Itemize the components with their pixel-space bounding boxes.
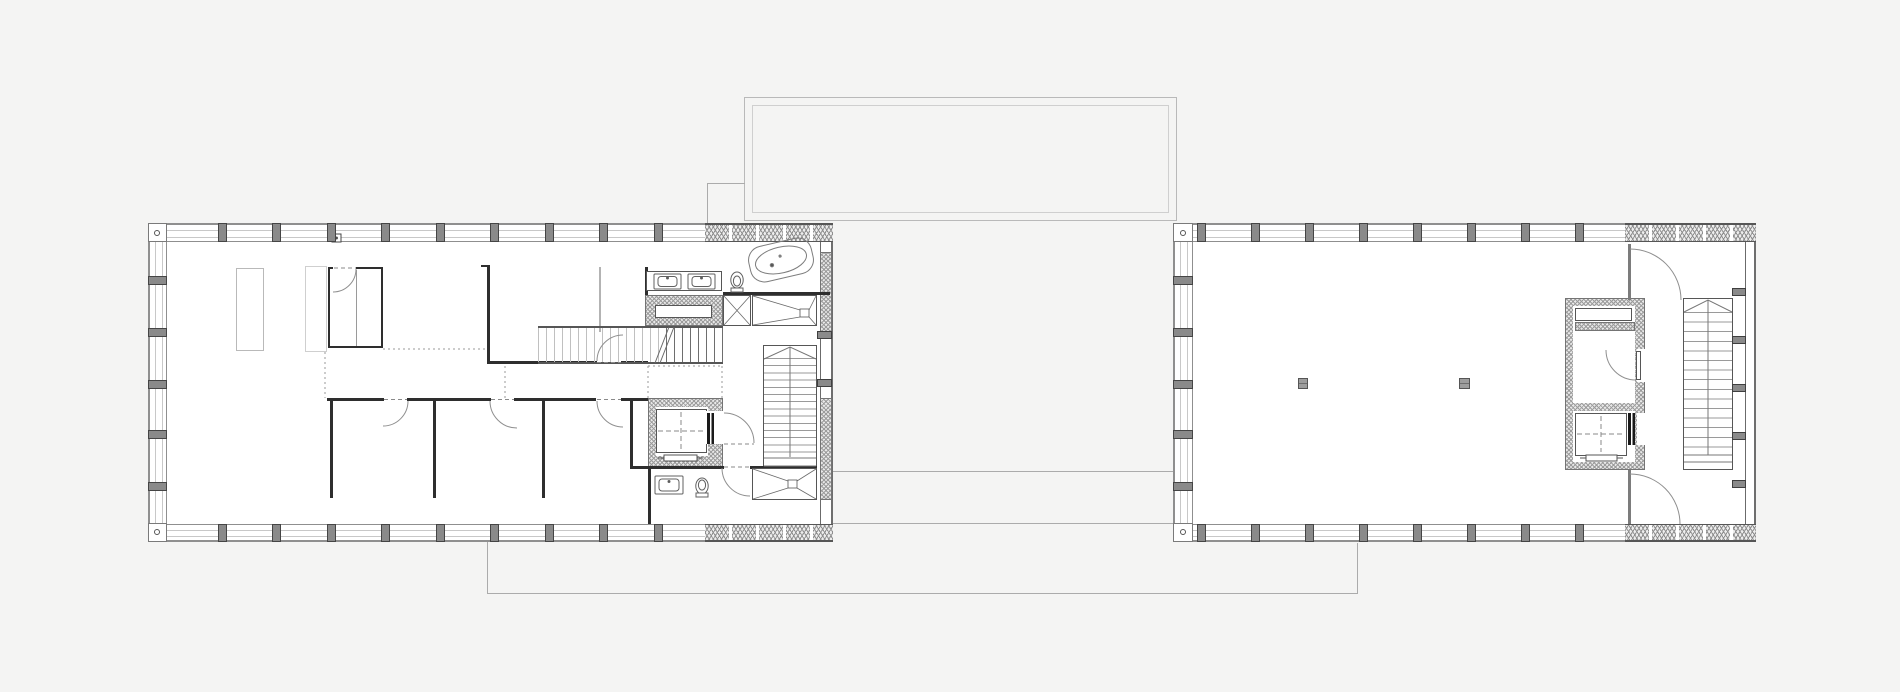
core-storage-door-leaf xyxy=(1636,351,1641,380)
lb-bottom-mullion xyxy=(327,524,336,542)
lb-right-pier xyxy=(817,331,832,339)
door-jamb-north xyxy=(1628,244,1631,300)
rb-bottom-mullion xyxy=(1413,524,1422,542)
main-stair-treads xyxy=(764,358,816,458)
roof-outline-inner xyxy=(752,105,1169,213)
rb-left-mullion xyxy=(1173,430,1193,439)
right-building-facade-south xyxy=(1173,524,1625,542)
lb-top-mullion xyxy=(490,223,499,242)
deck-outline-bottom xyxy=(487,593,1358,594)
rb-right-pier xyxy=(1732,288,1746,296)
lb-top-mullion xyxy=(654,223,663,242)
stair-guard-line xyxy=(599,267,601,332)
left-building-facade-south xyxy=(148,524,705,542)
lb-left-mullion xyxy=(148,276,167,285)
east-stair-treads xyxy=(1684,312,1732,455)
rb-right-pier xyxy=(1732,480,1746,488)
lb-left-mullion xyxy=(148,430,167,439)
rb-top-mullion xyxy=(1359,223,1368,242)
wall-l-vertical xyxy=(487,267,490,363)
right-building-hatched-wall-north xyxy=(1625,223,1756,242)
shower-north-tray xyxy=(752,295,817,326)
braced-shaft-box xyxy=(723,295,751,326)
bathroom-south-wall-north-a xyxy=(650,466,724,469)
bridge-line-upper xyxy=(833,471,1175,472)
partition-room2 xyxy=(433,401,436,498)
rb-bottom-mullion xyxy=(1467,524,1476,542)
rb-left-mullion xyxy=(1173,328,1193,337)
elevator-car xyxy=(656,409,707,453)
stair-mid-edge-south xyxy=(538,362,723,364)
rb-top-mullion xyxy=(1467,223,1476,242)
wall-l-cap xyxy=(481,265,490,267)
partition-room4 xyxy=(630,401,633,468)
lb-left-mullion xyxy=(148,328,167,337)
right-building-corner-post-nw xyxy=(1173,223,1193,242)
wall-rooms-b xyxy=(407,398,491,401)
partition-room3 xyxy=(542,401,545,498)
wall-rooms-d xyxy=(621,398,648,401)
lb-bottom-mullion xyxy=(436,524,445,542)
wardrobe-door-opening xyxy=(333,267,356,269)
bridge-line-lower xyxy=(833,523,1175,524)
lb-bottom-mullion xyxy=(654,524,663,542)
left-building-hatched-wall-north xyxy=(705,223,833,242)
core-elevator-door-opening xyxy=(1637,413,1645,445)
lb-bottom-mullion xyxy=(272,524,281,542)
rb-bottom-mullion xyxy=(1251,524,1260,542)
rb-bottom-mullion xyxy=(1575,524,1584,542)
partition-room1 xyxy=(330,401,333,498)
rb-bottom-mullion xyxy=(1521,524,1530,542)
lb-left-mullion xyxy=(148,380,167,389)
shower-south-tray xyxy=(752,468,817,500)
rb-right-pier xyxy=(1732,336,1746,344)
lb-top-mullion xyxy=(327,223,336,242)
rb-left-mullion xyxy=(1173,276,1193,285)
wall-rooms-a xyxy=(327,398,384,401)
rb-top-mullion xyxy=(1575,223,1584,242)
lb-bottom-mullion xyxy=(545,524,554,542)
lb-bottom-mullion xyxy=(218,524,227,542)
rb-top-mullion xyxy=(1521,223,1530,242)
rb-top-mullion xyxy=(1413,223,1422,242)
lb-bottom-mullion xyxy=(490,524,499,542)
core-shelf xyxy=(1575,308,1632,321)
lb-top-mullion xyxy=(436,223,445,242)
rb-right-pier xyxy=(1732,384,1746,392)
rb-right-pier xyxy=(1732,432,1746,440)
rb-top-mullion xyxy=(1251,223,1260,242)
right-building-facade-north xyxy=(1173,223,1625,242)
roof-link-line-vertical xyxy=(707,183,708,224)
left-building-corner-post-sw xyxy=(148,523,167,542)
free-column-west xyxy=(1298,378,1308,389)
elevator-door-opening xyxy=(706,411,723,444)
left-building-corner-post-nw xyxy=(148,223,167,242)
rb-top-mullion xyxy=(1197,223,1206,242)
right-building-hatched-wall-south xyxy=(1625,524,1756,542)
right-building-corner-post-sw xyxy=(1173,523,1193,542)
rb-bottom-mullion xyxy=(1197,524,1206,542)
duct-shaft-inner xyxy=(655,305,712,318)
lb-bottom-mullion xyxy=(381,524,390,542)
area-rug-outline xyxy=(236,268,264,351)
lb-top-mullion xyxy=(381,223,390,242)
floor-plan-canvas xyxy=(0,0,1900,692)
lb-top-mullion xyxy=(218,223,227,242)
lb-right-pier xyxy=(817,379,832,387)
core-shelf-hatch xyxy=(1575,322,1635,331)
left-building-wall-east-hatch-lower xyxy=(820,398,832,500)
wall-rooms-c xyxy=(514,398,596,401)
deck-outline-left xyxy=(487,542,488,594)
roof-link-line-horizontal xyxy=(707,183,745,184)
rb-bottom-mullion xyxy=(1305,524,1314,542)
stair-mid-treads-upper-flight xyxy=(538,328,666,362)
rb-left-mullion xyxy=(1173,482,1193,491)
left-building-hatched-wall-south xyxy=(705,524,833,542)
vanity-counter xyxy=(646,271,722,291)
lb-bottom-mullion xyxy=(599,524,608,542)
bathroom-south-wall-west xyxy=(648,466,651,524)
rb-bottom-mullion xyxy=(1359,524,1368,542)
core-elevator-car xyxy=(1575,413,1627,456)
door-jamb-south xyxy=(1628,470,1631,524)
free-column-east xyxy=(1459,378,1470,389)
lb-top-mullion xyxy=(599,223,608,242)
lb-top-mullion xyxy=(545,223,554,242)
lb-top-mullion xyxy=(272,223,281,242)
wall-room4-return xyxy=(630,466,650,469)
left-building-facade-north xyxy=(148,223,705,242)
cabinet-outline xyxy=(305,266,327,352)
rb-top-mullion xyxy=(1305,223,1314,242)
deck-outline-right xyxy=(1357,543,1358,594)
right-building-wall-east xyxy=(1745,242,1756,524)
rb-left-mullion xyxy=(1173,380,1193,389)
wardrobe-divider xyxy=(356,270,357,346)
stair-mid-treads-lower-flight xyxy=(666,328,723,362)
lb-left-mullion xyxy=(148,482,167,491)
